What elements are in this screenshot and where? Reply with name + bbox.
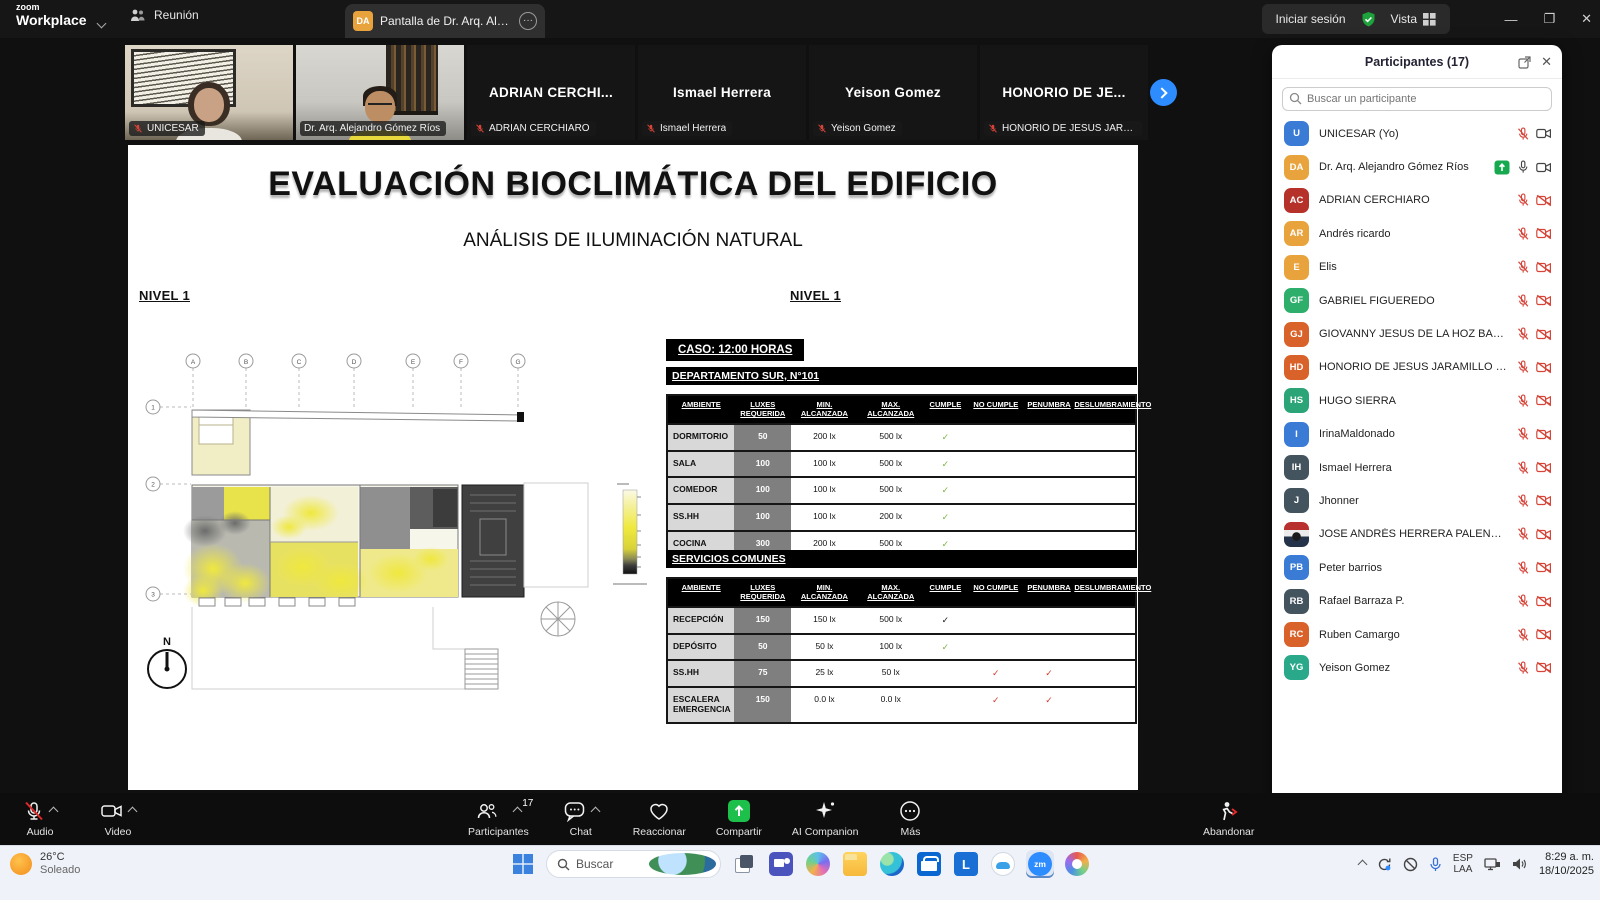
column-header: PENUMBRA (1025, 396, 1074, 423)
do-not-disturb-icon[interactable] (1403, 857, 1418, 872)
participant-search (1282, 87, 1552, 111)
table-check-cell: ✓ (1025, 661, 1074, 686)
time-label: 8:29 a. m. (1539, 850, 1594, 864)
tray-expand-icon[interactable] (1359, 861, 1366, 868)
teams-taskbar-button[interactable] (767, 850, 795, 878)
participant-name: GIOVANNY JESUS DE LA HOZ BARRIOS (1319, 328, 1507, 340)
participant-name: ADRIAN CERCHIARO (1319, 194, 1507, 206)
share-label: Compartir (716, 826, 762, 838)
camera-off-icon (1536, 194, 1552, 207)
video-tile[interactable]: Yeison Gomez Yeison Gomez (809, 45, 977, 140)
svg-text:E: E (411, 359, 416, 366)
table-check-cell (967, 608, 1025, 633)
video-label: Video (105, 826, 132, 838)
view-label: Vista (1391, 12, 1417, 26)
zoom-workplace-logo: zoom Workplace (16, 3, 87, 27)
heart-icon (647, 800, 671, 822)
participant-name: Yeison Gomez (1319, 662, 1507, 674)
avatar: GF (1284, 288, 1309, 313)
cloud-app-taskbar-button[interactable] (989, 850, 1017, 878)
table-row: DORMITORIO50200 lx500 lx✓ (668, 423, 1135, 450)
table-row: ESCALERA EMERGENCIA1500.0 lx0.0 lx✓✓ (668, 686, 1135, 722)
sync-icon[interactable] (1377, 857, 1392, 872)
table-cell: 150 (734, 688, 791, 722)
table-check-cell: ✓ (924, 505, 967, 530)
mic-muted-icon (1517, 127, 1529, 141)
svg-text:B: B (244, 359, 248, 366)
file-explorer-taskbar-button[interactable] (841, 850, 869, 878)
mic-muted-icon (1517, 427, 1529, 441)
table-cell: 100 lx (791, 505, 857, 530)
language-indicator[interactable]: ESPLAA (1453, 853, 1473, 876)
camera-off-icon (1536, 661, 1552, 674)
participant-row[interactable]: JOSE ANDRÉS HERRERA PALENCIA (1272, 518, 1562, 551)
participant-row[interactable]: GJ GIOVANNY JESUS DE LA HOZ BARRIOS (1272, 317, 1562, 350)
table-cell: 100 (734, 452, 791, 477)
participant-name: GABRIEL FIGUEREDO (1319, 295, 1507, 307)
table-cell: DEPÓSITO (668, 635, 734, 660)
copilot-taskbar-button[interactable] (804, 850, 832, 878)
react-button[interactable]: Reaccionar (633, 798, 686, 838)
table-check-cell (1073, 478, 1135, 503)
table-cell: 100 lx (791, 452, 857, 477)
maximize-button[interactable]: ❐ (1543, 11, 1555, 27)
window-controls: — ❐ ✕ (1504, 0, 1592, 38)
system-tray: ESPLAA 8:29 a. m. 18/10/2025 (1359, 850, 1594, 879)
mic-muted-icon (1517, 327, 1529, 341)
table-check-cell (924, 688, 967, 722)
column-header: NO CUMPLE (967, 396, 1025, 423)
search-icon (557, 858, 570, 871)
avatar: U (1284, 121, 1309, 146)
avatar: DA (353, 11, 373, 31)
avatar: AC (1284, 188, 1309, 213)
video-tile[interactable]: Dr. Arq. Alejandro Gómez Ríos (296, 45, 464, 140)
table-check-cell (924, 661, 967, 686)
avatar: YG (1284, 655, 1309, 680)
slide-title: EVALUACIÓN BIOCLIMÁTICA DEL EDIFICIO (128, 165, 1138, 204)
camera-off-icon (1536, 595, 1552, 608)
participant-row[interactable]: YG Yeison Gomez (1272, 651, 1562, 684)
avatar: RC (1284, 622, 1309, 647)
table-cell: 100 lx (791, 478, 857, 503)
participants-panel: Participantes (17) ✕ U UNICESAR (Yo) DA … (1272, 45, 1562, 838)
svg-text:G: G (515, 359, 520, 366)
close-panel-icon[interactable]: ✕ (1541, 54, 1552, 70)
participant-row[interactable]: AC ADRIAN CERCHIARO (1272, 184, 1562, 217)
slide-subtitle: ANÁLISIS DE ILUMINACIÓN NATURAL (128, 230, 1138, 252)
mic-muted-icon (1517, 360, 1529, 374)
taskbar-search[interactable]: Buscar (546, 850, 721, 878)
avatar: HS (1284, 388, 1309, 413)
sparkle-icon (813, 800, 837, 822)
volume-icon[interactable] (1512, 857, 1528, 871)
avatar: E (1284, 255, 1309, 280)
mic-muted-icon (988, 123, 998, 134)
participants-icon (475, 800, 499, 822)
audio-options-icon[interactable] (49, 806, 59, 816)
table-cell: 500 lx (858, 452, 924, 477)
table-row: DEPÓSITO5050 lx100 lx✓ (668, 633, 1135, 660)
table-check-cell (967, 505, 1025, 530)
avatar: AR (1284, 221, 1309, 246)
avatar: RB (1284, 589, 1309, 614)
tab-shared-screen[interactable]: DA Pantalla de Dr. Arq. Alejandro Gó ··· (345, 4, 545, 38)
camera-on-icon (1536, 161, 1552, 174)
camera-off-icon (1536, 561, 1552, 574)
l-app-taskbar-button[interactable]: L (952, 850, 980, 878)
spiral-stair (541, 602, 575, 636)
tile-name-label: UNICESAR (129, 121, 205, 136)
mic-muted-icon (23, 800, 45, 822)
tile-name-label: Ismael Herrera (642, 121, 732, 136)
zoom-taskbar-button[interactable]: zm (1026, 850, 1054, 878)
table-cell: 200 lx (858, 505, 924, 530)
table-cell: 50 (734, 425, 791, 450)
logo-zoom-text: zoom (16, 3, 87, 12)
participant-row[interactable]: I IrinaMaldonado (1272, 418, 1562, 451)
table-row: RECEPCIÓN150150 lx500 lx✓ (668, 606, 1135, 633)
table-check-cell (1025, 635, 1074, 660)
mic-muted-icon (1517, 527, 1529, 541)
ai-companion-label: AI Companion (792, 826, 859, 838)
table-servicios: AMBIENTELUXES REQUERIDAMIN. ALCANZADAMAX… (666, 577, 1137, 724)
participant-name: Jhonner (1319, 495, 1507, 507)
mic-muted-icon (1517, 661, 1529, 675)
video-tile[interactable]: ADRIAN CERCHI... ADRIAN CERCHIARO (467, 45, 635, 140)
camera-off-icon (1536, 394, 1552, 407)
view-button[interactable]: Vista (1391, 12, 1436, 26)
participant-name: Rafael Barraza P. (1319, 595, 1507, 607)
popout-icon[interactable] (1518, 56, 1531, 69)
column-header: CUMPLE (924, 396, 967, 423)
tray-mic-icon[interactable] (1429, 857, 1442, 872)
participant-row[interactable]: HD HONORIO DE JESUS JARAMILLO ORT... (1272, 351, 1562, 384)
svg-text:N: N (163, 636, 171, 648)
network-icon[interactable] (1484, 857, 1501, 871)
date-label: 18/10/2025 (1539, 864, 1594, 878)
participant-row[interactable]: AR Andrés ricardo (1272, 217, 1562, 250)
camera-off-icon (1536, 361, 1552, 374)
participant-name: JOSE ANDRÉS HERRERA PALENCIA (1319, 528, 1507, 540)
table-check-cell (967, 478, 1025, 503)
table-check-cell (967, 635, 1025, 660)
table-check-cell: ✓ (967, 661, 1025, 686)
camera-off-icon (1536, 494, 1552, 507)
security-shield-icon[interactable] (1360, 11, 1377, 28)
column-header: AMBIENTE (668, 396, 734, 423)
table-check-cell: ✓ (924, 608, 967, 633)
svg-text:3: 3 (151, 592, 155, 599)
screen-share-icon (1494, 160, 1510, 175)
participant-name: IrinaMaldonado (1319, 428, 1507, 440)
table-check-cell (967, 425, 1025, 450)
table-row: COMEDOR100100 lx500 lx✓ (668, 476, 1135, 503)
react-label: Reaccionar (633, 826, 686, 838)
task-view-icon (732, 852, 756, 876)
table-header: AMBIENTELUXES REQUERIDAMIN. ALCANZADAMAX… (668, 396, 1135, 423)
table-cell: SS.HH (668, 661, 734, 686)
participant-name: Ruben Camargo (1319, 629, 1507, 641)
share-button[interactable]: Compartir (716, 798, 762, 838)
table-check-cell (1073, 688, 1135, 722)
mic-muted-icon (1517, 260, 1529, 274)
tab-options-icon[interactable]: ··· (519, 12, 537, 30)
table-check-cell (1073, 608, 1135, 633)
share-screen-icon (726, 799, 752, 823)
tab-meeting-label: Reunión (154, 8, 199, 22)
floor-plan: N ABCDEFG123 (143, 317, 663, 717)
table-cell: 500 lx (858, 478, 924, 503)
more-button[interactable]: Más (888, 798, 932, 838)
windows-logo-icon (512, 853, 534, 875)
table-check-cell: ✓ (967, 688, 1025, 722)
mic-muted-icon (1517, 394, 1529, 408)
table-cell: 200 lx (791, 425, 857, 450)
camera-off-icon (1536, 227, 1552, 240)
table-cell: 0.0 lx (858, 688, 924, 722)
edge-taskbar-button[interactable] (878, 850, 906, 878)
svg-text:A: A (191, 359, 196, 366)
chat-icon (563, 800, 587, 822)
people-icon (130, 8, 146, 22)
participant-name: Andrés ricardo (1319, 228, 1507, 240)
camera-off-icon (1536, 328, 1552, 341)
column-header: MAX. ALCANZADA (858, 396, 924, 423)
table-check-cell (1073, 505, 1135, 530)
media-app-taskbar-button[interactable] (1063, 850, 1091, 878)
column-header: DESLUMBRAMIENTO (1073, 579, 1135, 606)
participants-panel-title: Participantes (17) (1365, 55, 1469, 69)
copilot-icon (806, 852, 830, 876)
edge-icon (880, 852, 904, 876)
column-header: LUXES REQUERIDA (734, 396, 791, 423)
column-header: MIN. ALCANZADA (791, 579, 857, 606)
tile-name-label: Yeison Gomez (813, 121, 902, 136)
table-check-cell (1073, 635, 1135, 660)
store-icon (917, 852, 941, 876)
start-button[interactable] (509, 850, 537, 878)
participants-panel-header: Participantes (17) ✕ (1272, 45, 1562, 79)
table-cell: 50 lx (858, 661, 924, 686)
participant-name: HONORIO DE JESUS JARAMILLO ORT... (1319, 361, 1507, 373)
ai-companion-button[interactable]: AI Companion (792, 798, 859, 838)
column-header: PENUMBRA (1025, 579, 1074, 606)
table-check-cell: ✓ (924, 478, 967, 503)
mic-muted-icon (1517, 294, 1529, 308)
store-taskbar-button[interactable] (915, 850, 943, 878)
leave-button[interactable]: Abandonar (1203, 798, 1254, 838)
column-header: LUXES REQUERIDA (734, 579, 791, 606)
participant-name: Peter barrios (1319, 562, 1507, 574)
avatar: IH (1284, 455, 1309, 480)
workspace-dropdown-icon[interactable] (98, 14, 105, 32)
table-cell: 500 lx (858, 608, 924, 633)
teams-icon (769, 852, 793, 876)
table-cell: 50 (734, 635, 791, 660)
table-check-cell (1025, 608, 1074, 633)
participant-name: Elis (1319, 261, 1507, 273)
camera-off-icon (1536, 294, 1552, 307)
svg-text:F: F (459, 359, 463, 366)
search-icon (1289, 92, 1302, 105)
mic-muted-icon (1517, 628, 1529, 642)
north-arrow: N (148, 636, 186, 688)
avatar: DA (1284, 155, 1309, 180)
column-header: NO CUMPLE (967, 579, 1025, 606)
column-header: MAX. ALCANZADA (858, 579, 924, 606)
mic-muted-icon (475, 123, 485, 134)
participant-row[interactable]: GF GABRIEL FIGUEREDO (1272, 284, 1562, 317)
signin-button[interactable]: Iniciar sesión (1276, 12, 1346, 26)
zoom-toolbar: Audio Video 17 Participantes (0, 793, 1600, 845)
participant-name: Dr. Arq. Alejandro Gómez Ríos (1319, 161, 1484, 173)
mic-muted-icon (1517, 193, 1529, 207)
desktop-screen: zoom Workplace Reunión DA Pantalla de Dr… (0, 0, 1600, 900)
mic-muted-icon (646, 123, 656, 134)
video-button[interactable]: Video (96, 798, 140, 838)
titlebar-actions: Iniciar sesión Vista (1262, 4, 1451, 34)
section-title-servicios: SERVICIOS COMUNES (666, 550, 1137, 568)
avatar: I (1284, 422, 1309, 447)
mic-muted-icon (133, 123, 143, 134)
cloud-app-icon (991, 852, 1015, 876)
table-cell: 150 (734, 608, 791, 633)
leave-label: Abandonar (1203, 826, 1254, 838)
table-check-cell (1025, 425, 1074, 450)
video-tile[interactable]: UNICESAR (125, 45, 293, 140)
participant-row[interactable]: HS HUGO SIERRA (1272, 384, 1562, 417)
search-input[interactable] (1282, 87, 1552, 111)
table-cell: SALA (668, 452, 734, 477)
table-cell: ESCALERA EMERGENCIA (668, 688, 734, 722)
table-row: SS.HH100100 lx200 lx✓ (668, 503, 1135, 530)
participant-row[interactable]: DA Dr. Arq. Alejandro Gómez Ríos (1272, 150, 1562, 183)
next-videos-button[interactable] (1150, 79, 1177, 106)
audio-label: Audio (27, 826, 54, 838)
section-title-departamento: DEPARTAMENTO SUR, N°101 (666, 367, 1137, 385)
search-placeholder: Buscar (576, 857, 643, 871)
table-cell: 25 lx (791, 661, 857, 686)
avatar: GJ (1284, 322, 1309, 347)
minimize-button[interactable]: — (1504, 12, 1517, 27)
chat-button[interactable]: Chat (559, 798, 603, 838)
tile-name-label: ADRIAN CERCHIARO (471, 121, 596, 136)
column-header: MIN. ALCANZADA (791, 396, 857, 423)
chat-label: Chat (570, 826, 592, 838)
media-app-icon (1065, 852, 1089, 876)
mic-muted-icon (1517, 561, 1529, 575)
table-cell: 100 lx (858, 635, 924, 660)
mic-on-icon (1517, 160, 1529, 174)
chat-options-icon[interactable] (590, 806, 600, 816)
zoom-icon: zm (1028, 852, 1052, 876)
table-check-cell (1025, 478, 1074, 503)
table-cell: COMEDOR (668, 478, 734, 503)
svg-text:C: C (297, 359, 302, 366)
file-explorer-icon (843, 852, 867, 876)
participant-name: UNICESAR (Yo) (1319, 128, 1507, 140)
table-check-cell: ✓ (924, 425, 967, 450)
participant-row[interactable]: RB Rafael Barraza P. (1272, 584, 1562, 617)
table-cell: 0.0 lx (791, 688, 857, 722)
clock-widget[interactable]: 8:29 a. m. 18/10/2025 (1539, 850, 1594, 879)
video-filmstrip: UNICESAR Dr. Arq. Alejandro Gómez Ríos A… (125, 45, 1148, 140)
participants-label: Participantes (468, 826, 529, 838)
participants-button[interactable]: 17 Participantes (468, 798, 529, 838)
camera-off-icon (1536, 528, 1552, 541)
table-check-cell: ✓ (924, 452, 967, 477)
table-cell: DORMITORIO (668, 425, 734, 450)
participant-row[interactable]: E Elis (1272, 251, 1562, 284)
table-row: SALA100100 lx500 lx✓ (668, 450, 1135, 477)
participant-row[interactable]: J Jhonner (1272, 484, 1562, 517)
participant-name: HUGO SIERRA (1319, 395, 1507, 407)
participant-row[interactable]: PB Peter barrios (1272, 551, 1562, 584)
table-cell: 100 (734, 505, 791, 530)
participant-row[interactable]: RC Ruben Camargo (1272, 618, 1562, 651)
video-options-icon[interactable] (128, 806, 138, 816)
participant-row[interactable]: IH Ismael Herrera (1272, 451, 1562, 484)
avatar: J (1284, 488, 1309, 513)
table-header: AMBIENTELUXES REQUERIDAMIN. ALCANZADAMAX… (668, 579, 1135, 606)
mic-muted-icon (817, 123, 827, 134)
search-highlight-image (649, 853, 716, 875)
table-cell: 100 (734, 478, 791, 503)
svg-text:D: D (352, 359, 357, 366)
table-cell: SS.HH (668, 505, 734, 530)
table-check-cell: ✓ (924, 635, 967, 660)
participant-row[interactable]: U UNICESAR (Yo) (1272, 117, 1562, 150)
participant-name: Ismael Herrera (1319, 462, 1507, 474)
camera-icon (100, 800, 124, 822)
table-departamento: AMBIENTELUXES REQUERIDAMIN. ALCANZADAMAX… (666, 394, 1137, 559)
column-header: DESLUMBRAMIENTO (1073, 396, 1135, 423)
shared-screen-slide: EVALUACIÓN BIOCLIMÁTICA DEL EDIFICIO ANÁ… (128, 145, 1138, 790)
mic-muted-icon (1517, 227, 1529, 241)
table-cell: RECEPCIÓN (668, 608, 734, 633)
illuminance-legend (613, 483, 647, 585)
table-check-cell (1073, 661, 1135, 686)
table-check-cell (1025, 505, 1074, 530)
level-label-left: NIVEL 1 (139, 288, 190, 303)
svg-text:2: 2 (151, 482, 155, 489)
mic-muted-icon (1517, 494, 1529, 508)
table-cell: 500 lx (858, 425, 924, 450)
more-label: Más (901, 826, 921, 838)
column-header: CUMPLE (924, 579, 967, 606)
tile-name-label: Dr. Arq. Alejandro Gómez Ríos (300, 121, 446, 136)
column-header: AMBIENTE (668, 579, 734, 606)
table-cell: 150 lx (791, 608, 857, 633)
table-check-cell (1073, 452, 1135, 477)
table-check-cell (967, 452, 1025, 477)
close-button[interactable]: ✕ (1581, 11, 1592, 27)
level-label-right: NIVEL 1 (790, 288, 841, 303)
avatar: PB (1284, 555, 1309, 580)
video-tile[interactable]: HONORIO DE JE... HONORIO DE JESUS JARAMI… (980, 45, 1148, 140)
table-check-cell (1025, 452, 1074, 477)
task-view-taskbar-button[interactable] (730, 850, 758, 878)
tab-meeting[interactable]: Reunión (130, 8, 199, 22)
avatar: HD (1284, 355, 1309, 380)
camera-off-icon (1536, 628, 1552, 641)
windows-taskbar: 26°C Soleado Buscar Lzm (0, 845, 1600, 900)
logo-workplace-text: Workplace (16, 13, 87, 27)
camera-off-icon (1536, 261, 1552, 274)
audio-button[interactable]: Audio (18, 798, 62, 838)
video-tile[interactable]: Ismael Herrera Ismael Herrera (638, 45, 806, 140)
